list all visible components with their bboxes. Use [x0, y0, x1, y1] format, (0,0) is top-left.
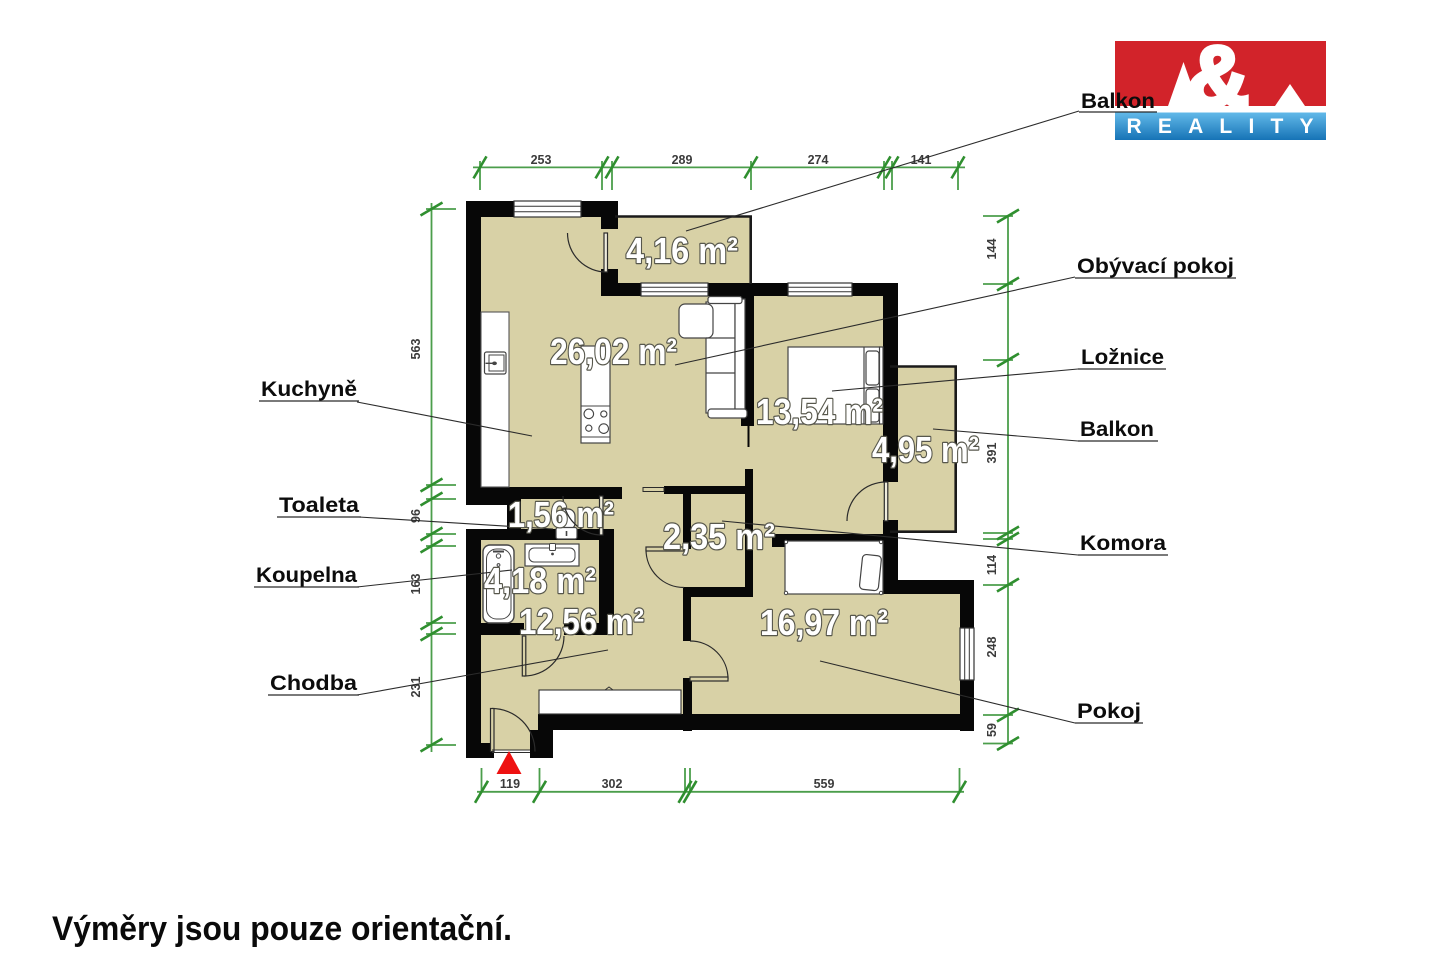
svg-text:302: 302	[602, 777, 623, 791]
svg-text:559: 559	[814, 777, 835, 791]
svg-text:12,56 m²: 12,56 m²	[519, 601, 644, 642]
svg-text:141: 141	[911, 153, 932, 167]
svg-text:Pokoj: Pokoj	[1077, 699, 1141, 723]
svg-text:114: 114	[985, 555, 999, 575]
svg-text:4,16 m²: 4,16 m²	[626, 230, 738, 271]
svg-text:Obývací pokoj: Obývací pokoj	[1077, 254, 1234, 278]
svg-text:Chodba: Chodba	[270, 671, 358, 695]
svg-text:Koupelna: Koupelna	[256, 563, 358, 587]
svg-text:Balkon: Balkon	[1081, 89, 1155, 113]
svg-text:391: 391	[985, 443, 999, 464]
svg-text:119: 119	[500, 777, 520, 791]
svg-text:248: 248	[985, 637, 999, 658]
svg-text:4,18 m²: 4,18 m²	[484, 560, 596, 601]
svg-text:144: 144	[985, 239, 999, 260]
svg-text:13,54 m²: 13,54 m²	[756, 391, 883, 432]
svg-text:253: 253	[531, 153, 552, 167]
svg-text:Kuchyně: Kuchyně	[261, 377, 357, 401]
svg-text:1,56 m²: 1,56 m²	[508, 494, 614, 535]
svg-text:Toaleta: Toaleta	[279, 493, 360, 517]
svg-text:163: 163	[409, 574, 423, 595]
svg-text:Ložnice: Ložnice	[1081, 345, 1164, 369]
svg-text:16,97 m²: 16,97 m²	[760, 602, 888, 643]
svg-text:4,95 m²: 4,95 m²	[872, 429, 979, 470]
svg-text:563: 563	[409, 339, 423, 360]
svg-text:2,35 m²: 2,35 m²	[663, 516, 775, 557]
svg-text:26,02 m²: 26,02 m²	[550, 331, 677, 372]
svg-text:Balkon: Balkon	[1080, 417, 1154, 441]
svg-text:Výměry jsou pouze orientační.: Výměry jsou pouze orientační.	[52, 910, 512, 948]
svg-text:231: 231	[409, 677, 423, 698]
svg-text:289: 289	[672, 153, 693, 167]
svg-text:&: &	[1187, 29, 1249, 125]
svg-text:Komora: Komora	[1080, 531, 1167, 555]
svg-text:274: 274	[808, 153, 829, 167]
svg-text:59: 59	[985, 723, 999, 737]
